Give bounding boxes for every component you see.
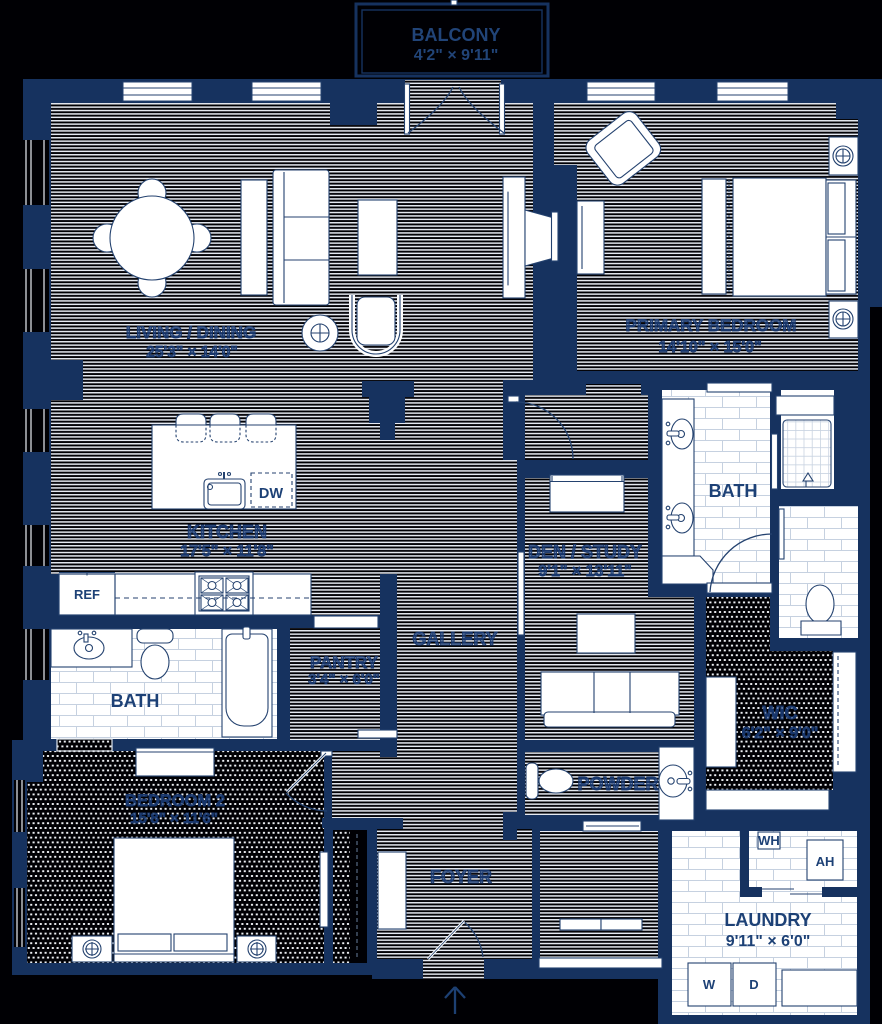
svg-text:BEDROOM 2: BEDROOM 2 [125,792,225,810]
svg-text:LAUNDRY: LAUNDRY [724,910,811,930]
svg-text:BATH: BATH [111,691,160,711]
svg-text:17'5" × 11'8": 17'5" × 11'8" [180,543,274,560]
svg-text:14'10" × 15'0": 14'10" × 15'0" [658,339,761,356]
svg-text:GALLERY: GALLERY [412,629,497,649]
svg-text:BATH: BATH [709,481,758,501]
svg-text:WIC: WIC [763,703,798,723]
svg-text:DW: DW [259,486,283,502]
svg-text:BALCONY: BALCONY [412,25,501,45]
svg-text:9'1" × 13'11": 9'1" × 13'11" [538,563,632,580]
svg-text:FOYER: FOYER [430,867,492,887]
svg-text:D: D [749,977,758,992]
svg-text:25'3" × 14'0": 25'3" × 14'0" [146,344,237,361]
svg-text:REF: REF [74,587,100,602]
svg-text:PANTRY: PANTRY [310,653,379,672]
svg-text:6'2" × 9'0": 6'2" × 9'0" [742,725,819,742]
svg-text:W: W [703,977,716,992]
svg-text:POWDER: POWDER [578,774,659,794]
svg-text:DEN / STUDY: DEN / STUDY [528,542,642,562]
svg-text:KITCHEN: KITCHEN [187,522,267,542]
svg-text:3'4" × 6'0": 3'4" × 6'0" [308,671,380,688]
svg-text:AH: AH [816,854,835,869]
svg-text:4'2" × 9'11": 4'2" × 9'11" [414,47,499,64]
svg-text:15'8" × 11'6": 15'8" × 11'6" [130,810,218,827]
svg-text:WH: WH [758,833,780,848]
svg-text:9'11" × 6'0": 9'11" × 6'0" [726,933,811,950]
svg-text:LIVING / DINING: LIVING / DINING [126,323,256,342]
svg-text:PRIMARY BEDROOM: PRIMARY BEDROOM [626,316,797,335]
